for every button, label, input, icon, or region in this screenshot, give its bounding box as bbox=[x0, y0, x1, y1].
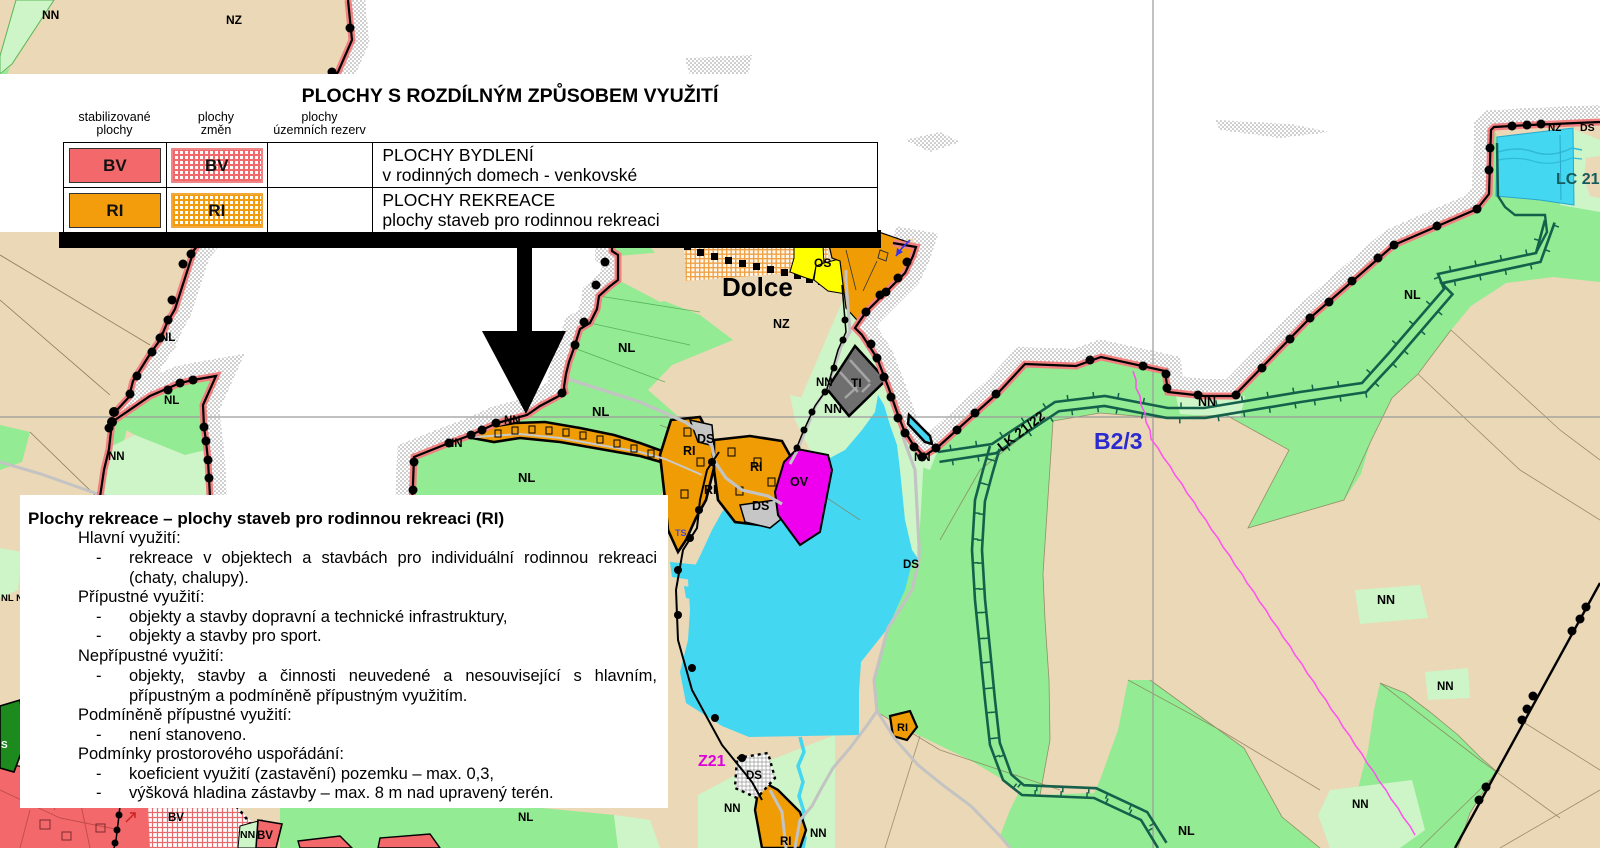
svg-text:RI: RI bbox=[704, 483, 717, 497]
svg-text:NN: NN bbox=[1352, 799, 1369, 811]
svg-text:NL: NL bbox=[592, 404, 609, 419]
svg-text:NN: NN bbox=[816, 377, 833, 389]
svg-text:B2/3: B2/3 bbox=[1094, 428, 1143, 454]
svg-text:NZ: NZ bbox=[773, 317, 790, 331]
svg-text:RI: RI bbox=[750, 460, 763, 474]
svg-text:NL: NL bbox=[618, 340, 635, 355]
svg-text:NN: NN bbox=[504, 415, 521, 427]
svg-text:NL: NL bbox=[518, 812, 533, 824]
svg-text:DS: DS bbox=[752, 499, 769, 513]
svg-text:NL: NL bbox=[1404, 288, 1421, 302]
svg-text:TS: TS bbox=[675, 528, 687, 538]
svg-text:DS: DS bbox=[903, 559, 919, 571]
svg-text:DS: DS bbox=[697, 432, 714, 446]
svg-text:NN: NN bbox=[108, 451, 125, 463]
svg-text:DS: DS bbox=[746, 770, 762, 782]
svg-text:NN: NN bbox=[810, 828, 827, 840]
svg-text:NN: NN bbox=[1377, 593, 1395, 607]
svg-text:LC 21: LC 21 bbox=[1556, 171, 1600, 188]
svg-text:OV: OV bbox=[790, 475, 809, 489]
svg-text:NN: NN bbox=[724, 803, 741, 815]
svg-text:OS: OS bbox=[814, 256, 831, 270]
svg-text:BV: BV bbox=[257, 830, 273, 842]
svg-text:RI: RI bbox=[683, 444, 696, 458]
svg-text:NN: NN bbox=[1437, 681, 1454, 693]
svg-text:NN: NN bbox=[1198, 395, 1216, 409]
svg-text:RI: RI bbox=[897, 722, 908, 734]
svg-text:RI: RI bbox=[780, 836, 792, 848]
svg-text:BV: BV bbox=[168, 812, 184, 824]
svg-text:NL: NL bbox=[164, 395, 179, 407]
svg-text:Dolce: Dolce bbox=[722, 272, 793, 302]
svg-text:DS: DS bbox=[1580, 122, 1595, 134]
svg-text:NZ: NZ bbox=[226, 13, 242, 27]
svg-text:Z21: Z21 bbox=[698, 753, 726, 770]
svg-text:NZ: NZ bbox=[1548, 123, 1561, 134]
svg-text:TI: TI bbox=[851, 376, 862, 390]
svg-text:NN: NN bbox=[42, 8, 59, 22]
svg-text:NL: NL bbox=[160, 332, 175, 344]
svg-text:NN: NN bbox=[240, 829, 255, 841]
svg-text:NN: NN bbox=[446, 438, 463, 450]
svg-text:NL: NL bbox=[518, 470, 535, 485]
svg-text:S: S bbox=[1, 740, 8, 751]
svg-text:NN: NN bbox=[914, 452, 931, 464]
svg-text:NN: NN bbox=[824, 402, 842, 416]
svg-text:NL: NL bbox=[1178, 824, 1195, 838]
